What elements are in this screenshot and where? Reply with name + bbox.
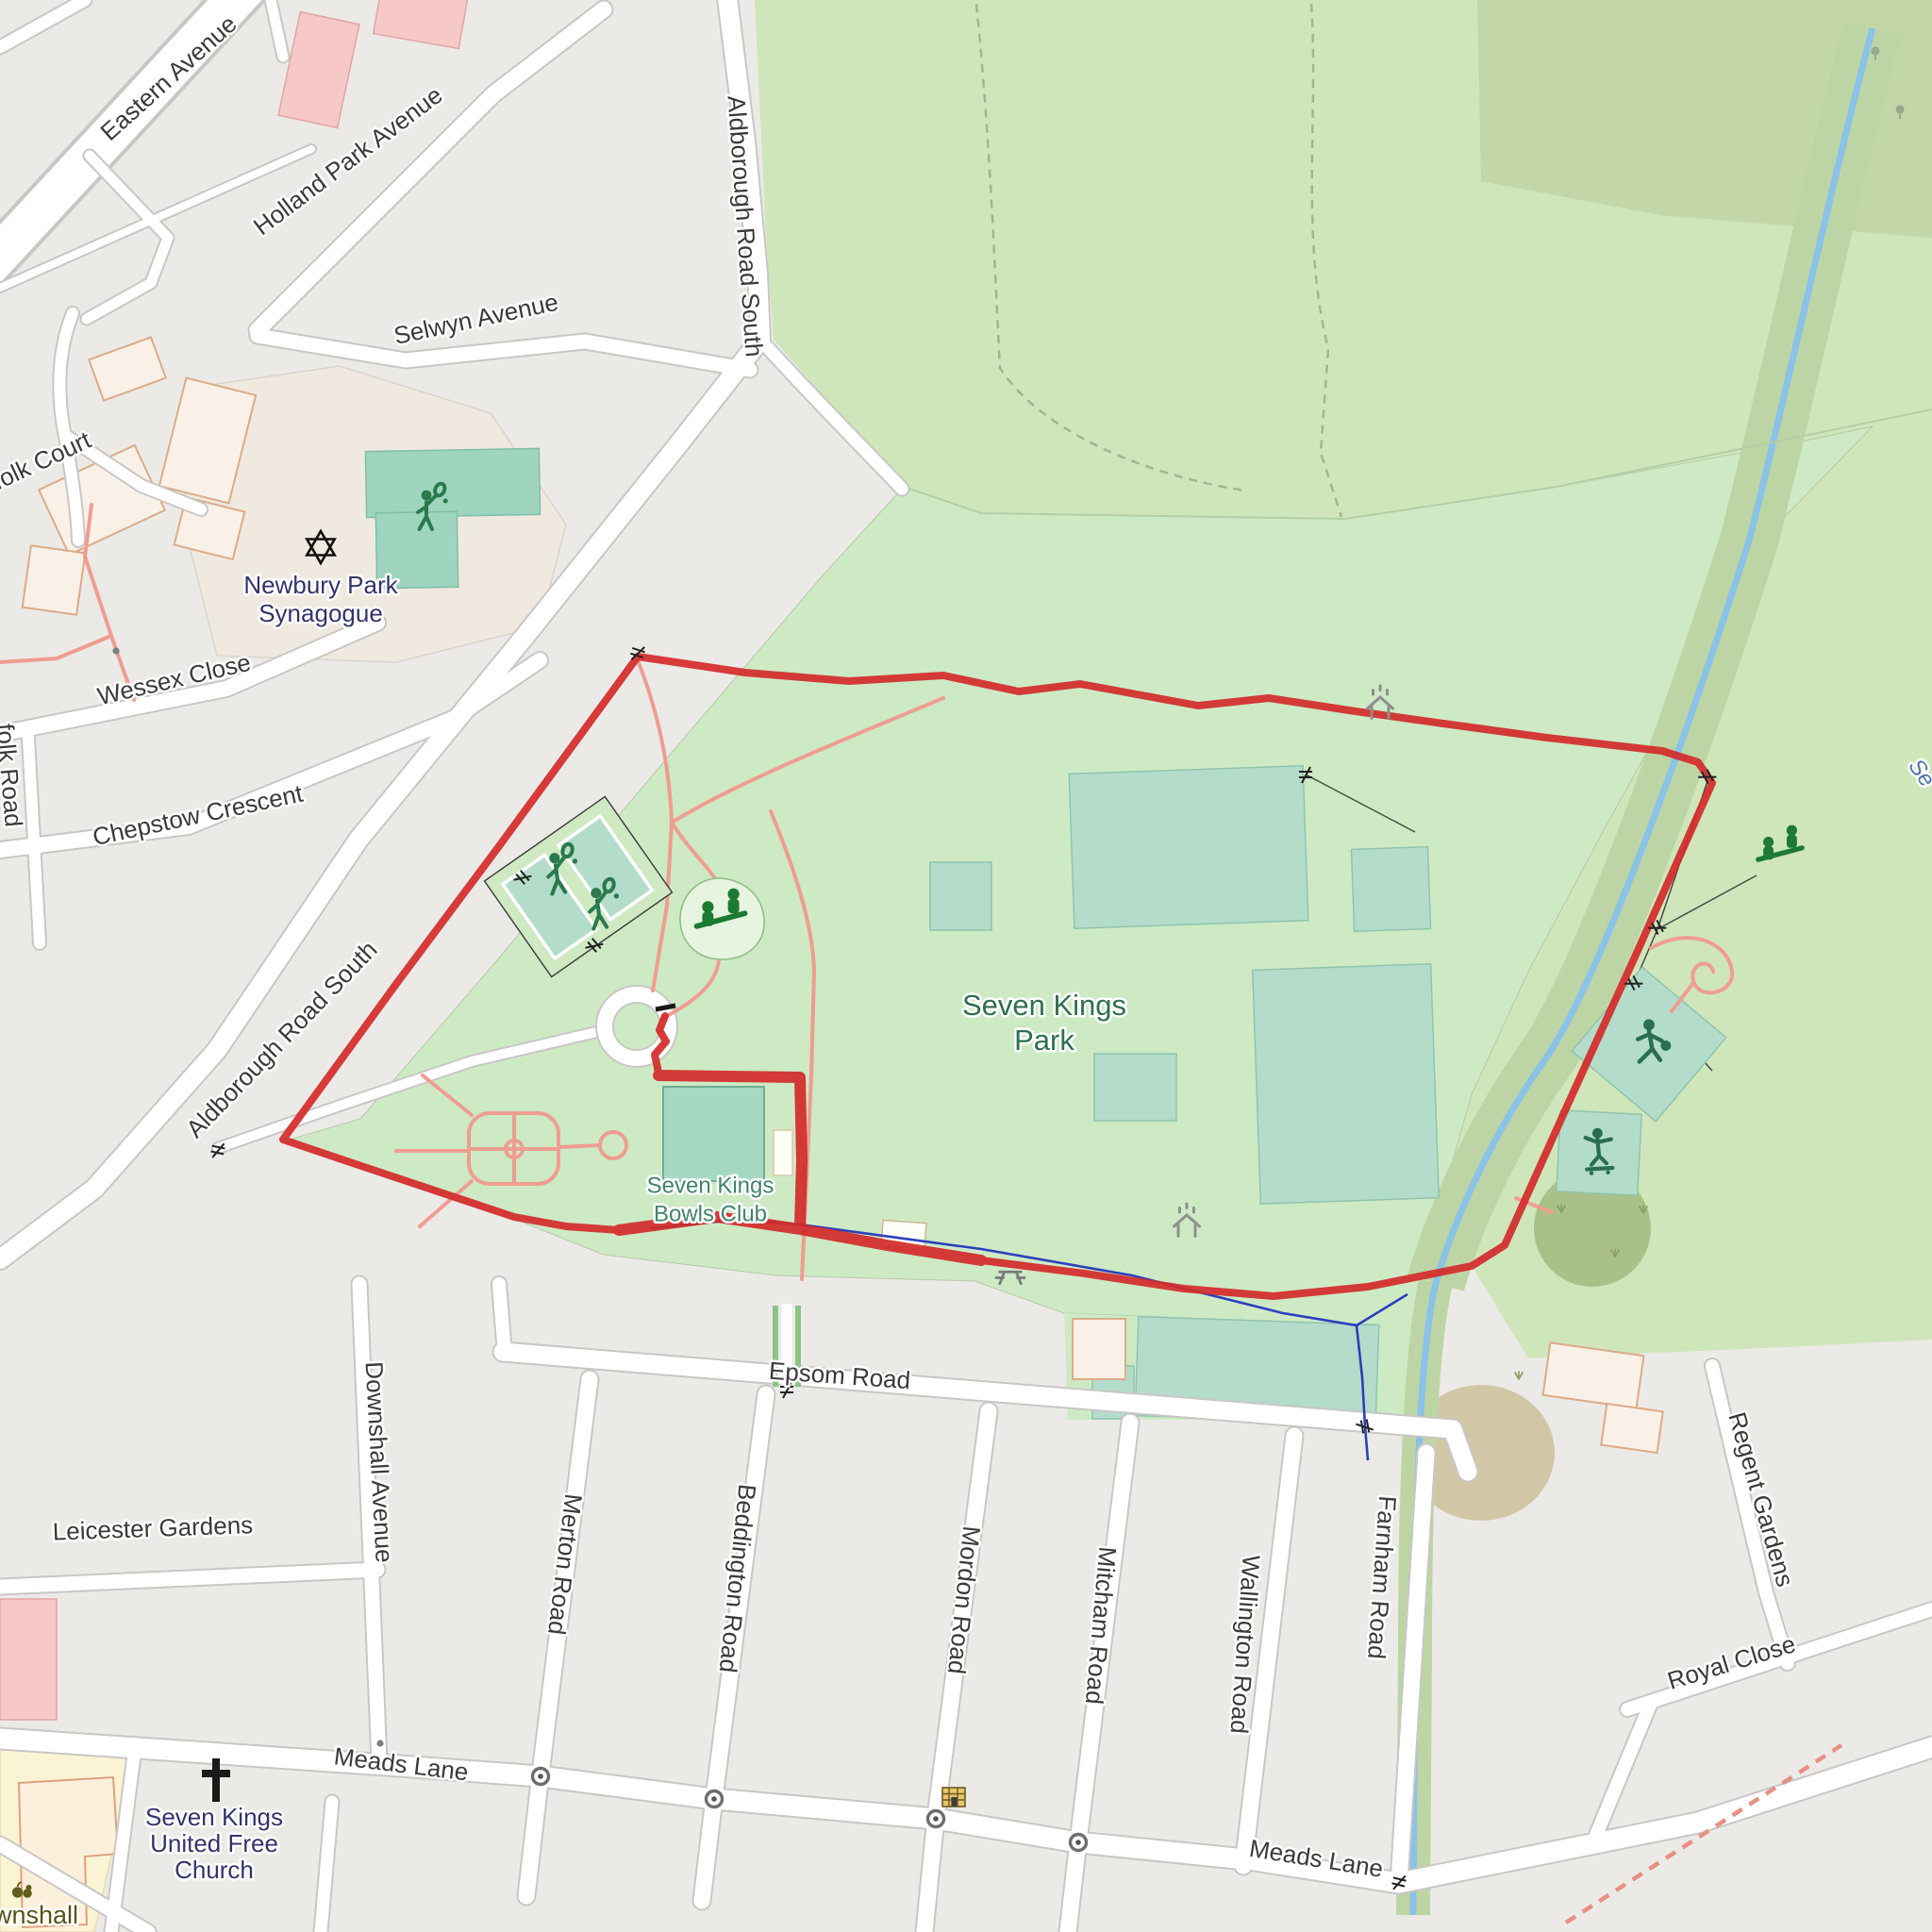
bollard-icon-2 — [112, 647, 119, 654]
building-epsom-1 — [1073, 1319, 1125, 1379]
mini-roundabout-icon-2 — [707, 1791, 723, 1807]
pitch-small-left — [930, 862, 991, 930]
map-canvas[interactable]: Eastern Avenue Holland Park Avenue Selwy… — [0, 0, 1932, 1932]
label-bowls-line2: Bowls Club — [654, 1201, 767, 1226]
bowls-pavilion — [774, 1130, 792, 1175]
mini-roundabout-icon-1 — [533, 1769, 549, 1785]
map-svg[interactable]: Eastern Avenue Holland Park Avenue Selwy… — [0, 0, 1932, 1932]
label-park-line1: Seven Kings — [962, 989, 1126, 1022]
pitch-large — [1069, 766, 1308, 929]
label-school-partial: wnshall — [0, 1901, 78, 1929]
label-synagogue-line2: Synagogue — [258, 599, 383, 627]
pitch-large-south — [1253, 964, 1440, 1204]
mini-roundabout-icon-4 — [1071, 1835, 1087, 1851]
mini-roundabout-icon-3 — [928, 1811, 944, 1827]
market-building-icon — [942, 1788, 965, 1807]
bowling-green — [663, 1087, 764, 1181]
pitch-small-right — [1352, 847, 1431, 932]
label-bowls-line1: Seven Kings — [647, 1173, 774, 1198]
building-regent-2 — [1601, 1404, 1663, 1453]
label-park-line2: Park — [1014, 1024, 1074, 1057]
building-pink-3 — [0, 1599, 57, 1720]
label-church-line2: United Free — [150, 1829, 278, 1857]
building-4 — [23, 545, 86, 614]
label-church-line1: Seven Kings — [145, 1803, 283, 1831]
label-synagogue-line1: Newbury Park — [243, 571, 398, 599]
pitch-small-center — [1094, 1054, 1176, 1121]
label-church-line3: Church — [175, 1856, 254, 1884]
bollard-icon-1 — [376, 1740, 383, 1746]
